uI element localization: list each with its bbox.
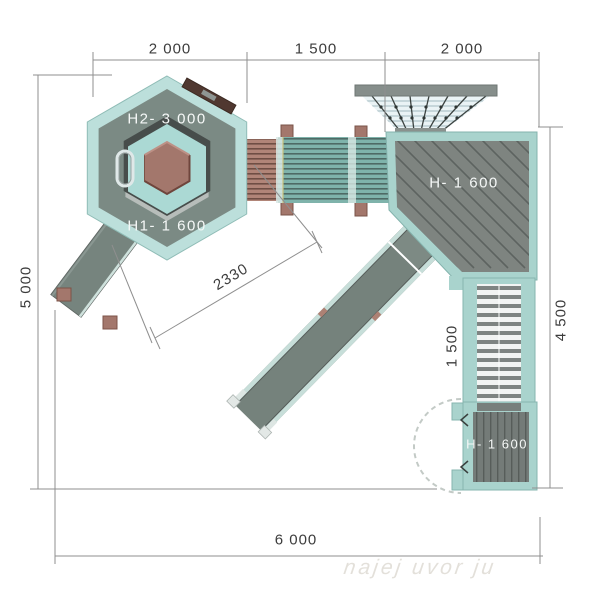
ramp-foot [103,316,117,329]
dim-stairs: 1 500 [444,325,461,368]
crawl-tube [243,125,392,216]
tower-lower-height-label: H1- 1 600 [127,218,206,235]
dim-left: 5 000 [18,266,35,309]
dim-bottom: 6 000 [275,532,318,549]
plan-graphics [0,0,608,600]
lower-platform-height-label: H- 1 600 [466,437,528,452]
dim-top-right: 2 000 [441,41,484,58]
watermark: najej uvor ju [342,556,498,580]
climbing-net [355,85,497,134]
dim-top-mid: 1 500 [295,41,338,58]
plan-drawing: 2 000 1 500 2 000 5 000 4 500 1 500 6 00… [0,0,608,600]
dim-top-left: 2 000 [149,41,192,58]
ramp-foot [57,288,71,301]
dim-right: 4 500 [553,299,570,342]
platform-height-label: H- 1 600 [429,175,499,192]
stairs [449,276,535,408]
tower-upper-height-label: H2- 3 000 [127,111,206,128]
